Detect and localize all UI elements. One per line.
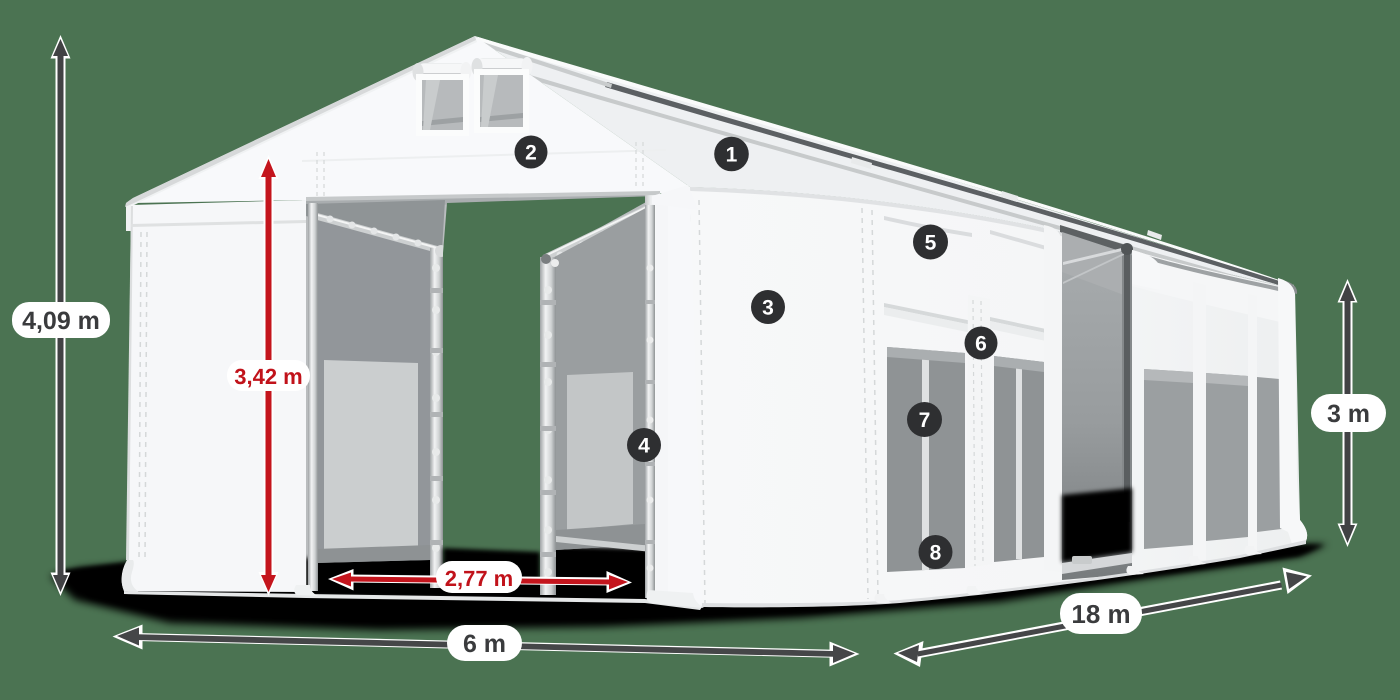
svg-text:6: 6 bbox=[975, 333, 987, 356]
svg-text:6 m: 6 m bbox=[463, 630, 506, 658]
svg-text:2: 2 bbox=[525, 142, 537, 165]
svg-text:7: 7 bbox=[919, 409, 931, 432]
svg-text:3,42 m: 3,42 m bbox=[234, 364, 303, 389]
svg-text:2,77 m: 2,77 m bbox=[445, 566, 514, 591]
svg-text:1: 1 bbox=[726, 144, 738, 167]
svg-text:3: 3 bbox=[762, 297, 774, 320]
svg-text:8: 8 bbox=[930, 542, 942, 565]
svg-text:5: 5 bbox=[925, 232, 937, 255]
svg-text:18 m: 18 m bbox=[1071, 599, 1130, 629]
svg-text:4,09 m: 4,09 m bbox=[22, 307, 100, 335]
svg-text:4: 4 bbox=[638, 435, 650, 458]
svg-text:3 m: 3 m bbox=[1327, 400, 1370, 428]
